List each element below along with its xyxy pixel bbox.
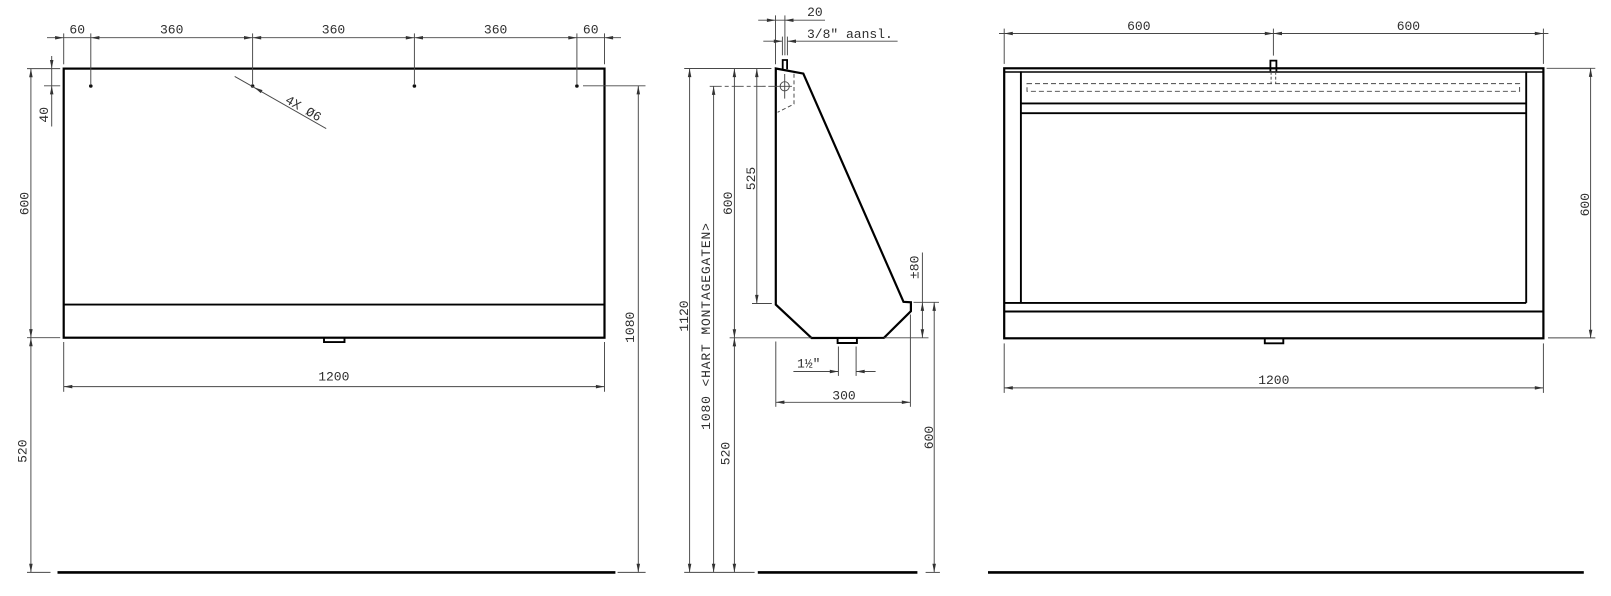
svg-text:600: 600 bbox=[721, 192, 736, 215]
svg-text:40: 40 bbox=[37, 107, 52, 123]
svg-text:600: 600 bbox=[1127, 19, 1150, 34]
svg-text:360: 360 bbox=[484, 22, 507, 37]
svg-text:3/8" aansl.: 3/8" aansl. bbox=[807, 27, 893, 42]
svg-text:60: 60 bbox=[583, 22, 599, 37]
svg-text:520: 520 bbox=[15, 439, 30, 462]
svg-text:360: 360 bbox=[322, 22, 345, 37]
svg-text:±80: ±80 bbox=[907, 256, 922, 279]
svg-text:360: 360 bbox=[160, 22, 183, 37]
svg-text:20: 20 bbox=[807, 5, 823, 20]
svg-text:1½": 1½" bbox=[797, 357, 820, 372]
svg-text:300: 300 bbox=[832, 388, 855, 403]
svg-text:525: 525 bbox=[744, 167, 759, 190]
svg-text:600: 600 bbox=[1397, 19, 1420, 34]
svg-text:4X Ø6: 4X Ø6 bbox=[283, 93, 324, 125]
svg-text:60: 60 bbox=[69, 22, 85, 37]
svg-text:1200: 1200 bbox=[318, 370, 349, 385]
svg-text:1120: 1120 bbox=[677, 300, 692, 331]
svg-text:1080: 1080 bbox=[623, 312, 638, 343]
svg-text:1080 <HART MONTAGEGATEN>: 1080 <HART MONTAGEGATEN> bbox=[699, 222, 714, 430]
svg-text:600: 600 bbox=[922, 426, 937, 449]
svg-text:520: 520 bbox=[719, 442, 734, 465]
svg-text:1200: 1200 bbox=[1258, 373, 1289, 388]
svg-text:600: 600 bbox=[1578, 193, 1593, 216]
svg-text:600: 600 bbox=[18, 192, 33, 215]
